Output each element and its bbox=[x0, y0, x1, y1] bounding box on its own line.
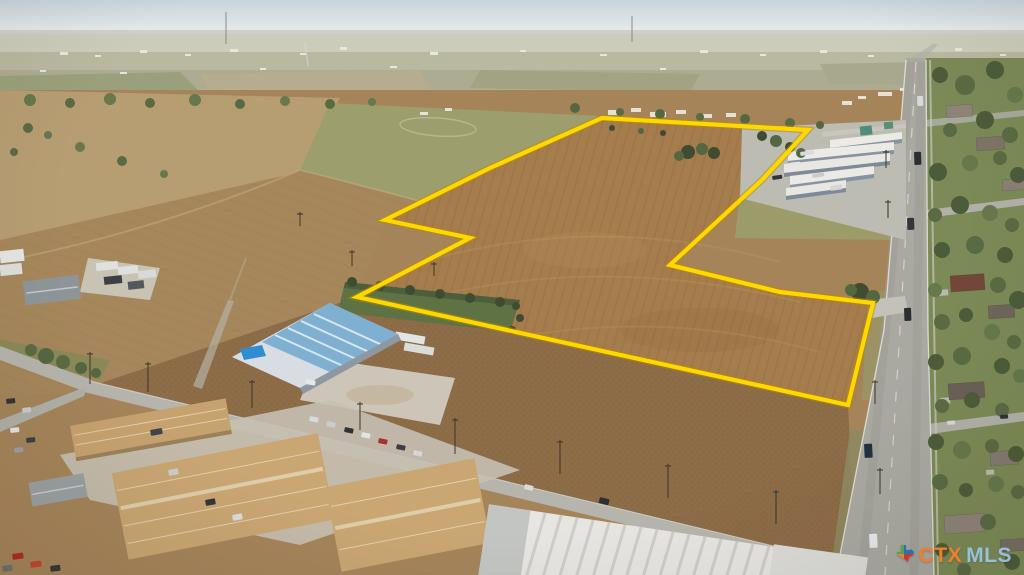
watermark-mls-text: MLS bbox=[966, 545, 1012, 566]
tree bbox=[980, 514, 996, 530]
tree bbox=[994, 358, 1010, 374]
distant-building bbox=[340, 47, 347, 50]
tree bbox=[638, 128, 644, 134]
vehicle bbox=[947, 420, 955, 425]
tree bbox=[10, 148, 18, 156]
tree bbox=[953, 347, 971, 365]
sky-and-horizon bbox=[0, 0, 1024, 98]
tree bbox=[984, 324, 1000, 340]
tree bbox=[368, 98, 376, 106]
truck bbox=[128, 280, 145, 290]
aerial-listing-photo: CTX MLS bbox=[0, 0, 1024, 575]
tree bbox=[655, 109, 665, 119]
house-roof bbox=[946, 104, 973, 118]
distant-building bbox=[842, 101, 852, 105]
tree bbox=[934, 314, 950, 330]
distant-building bbox=[185, 54, 191, 56]
tree bbox=[435, 289, 445, 299]
tree bbox=[512, 302, 520, 310]
tree bbox=[91, 368, 101, 378]
tree bbox=[770, 135, 782, 147]
tree bbox=[943, 123, 957, 137]
tree bbox=[145, 98, 155, 108]
shed-roof bbox=[0, 249, 25, 263]
tree bbox=[1007, 335, 1021, 349]
tree bbox=[495, 297, 505, 307]
vehicle bbox=[26, 437, 35, 443]
tree bbox=[44, 131, 52, 139]
distant-building bbox=[700, 50, 708, 53]
tree bbox=[516, 314, 524, 322]
tree bbox=[951, 196, 969, 214]
tree bbox=[465, 293, 475, 303]
tree bbox=[1008, 446, 1024, 462]
distant-building bbox=[631, 108, 641, 112]
tree bbox=[75, 362, 87, 374]
tree bbox=[959, 308, 973, 322]
teal-building bbox=[860, 125, 873, 135]
ctxmls-watermark: CTX MLS bbox=[894, 544, 1012, 566]
house-roof bbox=[976, 136, 1005, 151]
vehicle bbox=[904, 308, 911, 321]
shed-roof bbox=[0, 263, 23, 276]
tree bbox=[985, 439, 999, 453]
tree bbox=[609, 125, 615, 131]
tree bbox=[988, 476, 1004, 492]
vehicle bbox=[907, 218, 914, 230]
teal-building bbox=[884, 121, 894, 129]
vehicle bbox=[864, 444, 873, 458]
tree bbox=[1002, 127, 1018, 143]
tree bbox=[966, 236, 984, 254]
tree bbox=[674, 151, 684, 161]
tree bbox=[570, 103, 580, 113]
distant-building bbox=[95, 55, 101, 57]
tree bbox=[932, 474, 948, 490]
distant-building bbox=[120, 72, 127, 74]
distant-building bbox=[858, 96, 866, 99]
tree bbox=[696, 143, 708, 155]
tree bbox=[189, 94, 201, 106]
tree bbox=[65, 98, 75, 108]
distant-building bbox=[300, 53, 306, 55]
tree bbox=[928, 208, 942, 222]
tree bbox=[25, 344, 37, 356]
tree bbox=[962, 155, 978, 171]
tree bbox=[953, 441, 971, 459]
distant-building bbox=[430, 52, 438, 55]
tree bbox=[959, 483, 973, 497]
house-roof bbox=[988, 304, 1015, 319]
tree bbox=[280, 96, 290, 106]
tree bbox=[982, 205, 998, 221]
tree bbox=[38, 348, 54, 364]
tree bbox=[986, 61, 1004, 79]
tree bbox=[928, 354, 944, 370]
distant-building bbox=[420, 112, 428, 115]
tree bbox=[757, 131, 767, 141]
tree bbox=[845, 284, 857, 296]
distant-building bbox=[230, 49, 238, 52]
tree bbox=[347, 277, 357, 287]
distant-building bbox=[676, 110, 686, 114]
tree bbox=[405, 285, 415, 295]
distant-building bbox=[1000, 54, 1006, 56]
distant-building bbox=[760, 54, 766, 56]
distant-building bbox=[520, 50, 526, 52]
distant-building bbox=[660, 68, 666, 70]
vehicle bbox=[6, 398, 15, 404]
distant-building bbox=[600, 54, 607, 56]
tree bbox=[929, 163, 947, 181]
vehicle bbox=[10, 427, 19, 433]
distant-building bbox=[40, 70, 46, 72]
vehicle bbox=[14, 447, 23, 453]
tree bbox=[325, 99, 335, 109]
tree bbox=[935, 399, 949, 413]
distant-building bbox=[140, 50, 147, 53]
tree bbox=[990, 277, 1006, 293]
tree bbox=[616, 108, 624, 116]
tree bbox=[696, 113, 704, 121]
driveway bbox=[986, 469, 994, 475]
house-roof bbox=[944, 513, 985, 534]
distant-building bbox=[726, 113, 736, 117]
distant-building bbox=[260, 68, 266, 70]
tree bbox=[23, 123, 33, 133]
tree bbox=[104, 93, 116, 105]
tree bbox=[75, 142, 85, 152]
distant-building bbox=[955, 48, 962, 51]
tree bbox=[160, 170, 168, 178]
tree bbox=[660, 130, 666, 136]
vehicle bbox=[22, 407, 31, 413]
tree bbox=[928, 434, 944, 450]
vehicle bbox=[917, 96, 923, 106]
tree bbox=[117, 156, 127, 166]
aerial-scene bbox=[0, 0, 1024, 575]
tree bbox=[955, 75, 975, 95]
tree bbox=[740, 114, 750, 124]
tree bbox=[235, 99, 245, 109]
distant-building bbox=[445, 108, 452, 111]
distant-building bbox=[390, 66, 397, 68]
tree bbox=[1005, 218, 1019, 232]
tree bbox=[932, 67, 948, 83]
distant-building bbox=[878, 92, 892, 96]
watermark-ctx-text: CTX bbox=[919, 545, 963, 566]
tree bbox=[993, 151, 1007, 165]
tree bbox=[964, 392, 980, 408]
tree bbox=[934, 242, 950, 258]
vehicle bbox=[869, 534, 878, 548]
tree bbox=[928, 283, 942, 297]
tree bbox=[1007, 87, 1023, 103]
house-roof bbox=[950, 274, 985, 292]
tree bbox=[997, 247, 1013, 263]
distant-building bbox=[820, 50, 827, 53]
tree bbox=[816, 121, 824, 129]
tree bbox=[24, 94, 36, 106]
vehicle bbox=[914, 152, 921, 165]
texas-logo-icon bbox=[894, 544, 916, 566]
tree bbox=[56, 355, 70, 369]
vehicle bbox=[1000, 414, 1008, 419]
distant-building bbox=[868, 55, 874, 57]
tree bbox=[976, 111, 994, 129]
distant-building bbox=[60, 52, 68, 55]
tree bbox=[708, 147, 720, 159]
